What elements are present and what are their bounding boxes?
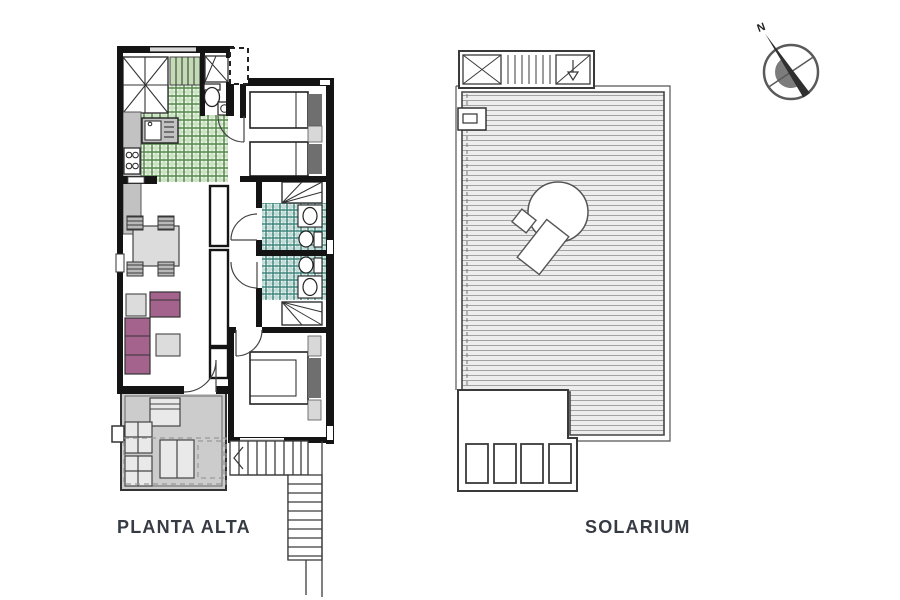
stair-landing [170,57,204,85]
armchair [150,292,180,317]
sofa-set [125,292,180,374]
compass-north-label: N [756,21,768,35]
corridor-cabinets [210,186,228,378]
void-dashed-outline [230,48,248,84]
bedroom-2 [250,336,321,420]
compass-rose [744,19,828,109]
floorplan-drawing: PLANTA ALTA [0,0,900,600]
roof-deck [456,86,670,441]
solarium-plan: SOLARIUM [456,51,691,537]
sun-lounger-area [458,390,577,491]
headboard-3 [308,358,321,398]
solarium-label: SOLARIUM [585,517,691,537]
deck-notch [458,108,486,130]
headboard-2 [308,144,322,174]
planta-alta-label: PLANTA ALTA [117,517,251,537]
terrace-niche [112,426,124,442]
dining-set [127,216,179,276]
stove [124,148,140,174]
planta-alta-plan: PLANTA ALTA [112,46,334,597]
kitchen-sink [142,118,178,143]
bathroom-2-fixtures [298,257,322,298]
shower-2 [282,302,322,325]
coffee-table [156,334,180,356]
dining-table [133,226,179,266]
bedroom-1 [250,92,322,176]
floorplan-canvas: PLANTA ALTA [0,0,900,600]
shower-1 [282,182,322,203]
terrace [112,392,226,490]
side-table [126,294,146,316]
interior-staircase [123,57,168,113]
bathroom-1-fixtures [298,205,322,247]
sofa [125,318,150,374]
nightstand [308,126,322,142]
terrace-table [150,398,180,426]
solarium-stair-access [459,51,594,88]
headboard-1 [308,94,322,126]
